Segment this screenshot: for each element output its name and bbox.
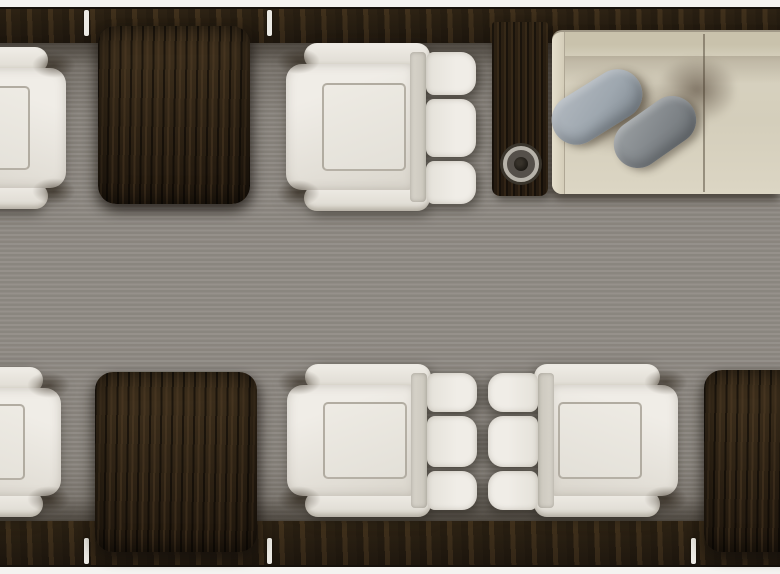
wood-table-aft-left <box>95 372 257 552</box>
seat-back-bolster <box>426 52 476 95</box>
side-cabinet <box>492 22 548 196</box>
seat-cushion-panel <box>322 83 406 171</box>
seat-cushion <box>0 68 66 188</box>
seat-cushion <box>286 64 414 190</box>
window-post <box>691 538 696 564</box>
seat-cushion <box>550 385 678 496</box>
seat-back-cushions <box>426 52 476 204</box>
cupholder <box>503 146 539 182</box>
seat-back-center <box>426 99 476 157</box>
seat-cushion-panel <box>0 86 30 170</box>
window-post <box>84 10 89 36</box>
seat-recline-joint <box>410 52 426 202</box>
window-post <box>267 538 272 564</box>
seat-recline-joint <box>411 373 427 508</box>
seat-recline-joint <box>538 373 554 508</box>
seat-cushion-panel <box>558 402 642 480</box>
seat-cushion-panel <box>0 404 25 480</box>
seat-back-bolster <box>427 471 477 510</box>
seat-back-bolster <box>488 471 538 510</box>
window-post <box>267 10 272 36</box>
seat-back-bolster <box>426 161 476 204</box>
seat-back-center <box>427 416 477 468</box>
seat-cushion <box>287 385 415 496</box>
cabin-top-view <box>0 0 780 574</box>
wood-table-forward-left <box>98 26 250 204</box>
window-post <box>84 538 89 564</box>
seat-cushion-panel <box>323 402 407 480</box>
club-seat-aft-center-right <box>486 363 678 518</box>
club-seat-forward-left <box>0 46 66 210</box>
club-seat-forward-center <box>286 42 478 212</box>
seat-back-bolster <box>427 373 477 412</box>
cupholder-well <box>514 157 528 171</box>
seat-back-center <box>488 416 538 468</box>
wood-table-aft-right <box>704 370 780 552</box>
club-seat-aft-center-left <box>287 363 479 518</box>
seat-back-cushions <box>427 373 477 510</box>
club-seat-aft-left <box>0 366 61 518</box>
seat-back-bolster <box>488 373 538 412</box>
seat-cushion <box>0 388 61 496</box>
fuselage-edge-top <box>0 0 780 9</box>
fuselage-edge-bottom <box>0 565 780 574</box>
seat-back-cushions <box>488 373 538 510</box>
